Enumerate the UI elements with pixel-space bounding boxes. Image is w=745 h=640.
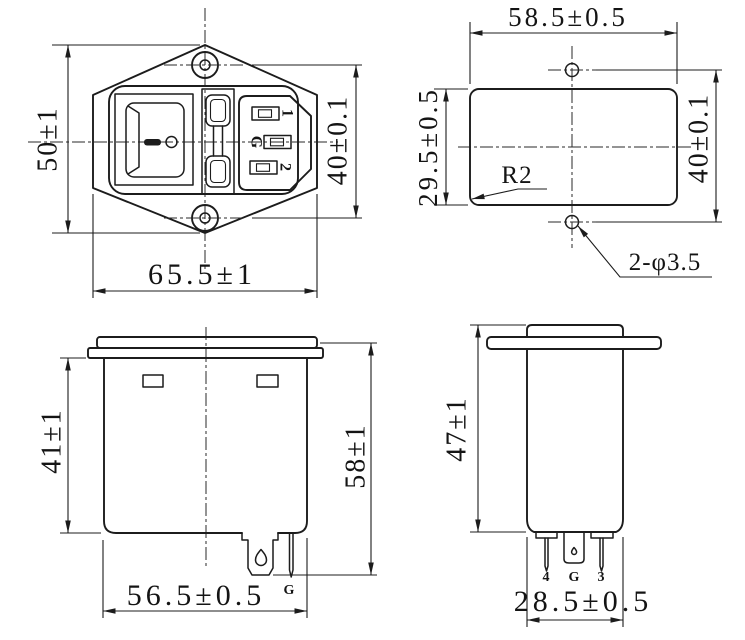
- end-view: 4 G 3 47±1 28.5±0.5: [442, 325, 662, 627]
- end-flange: [487, 337, 661, 349]
- dim-front-height: 50±1: [33, 45, 201, 233]
- pin-bottom-label: 2: [277, 163, 294, 171]
- fuse-drawer-bottom-inner: [211, 161, 226, 183]
- dim-front-hole-spacing-label: 40±0.1: [323, 95, 354, 185]
- rocker-fold-lines: [128, 106, 139, 174]
- latch-window-right: [257, 375, 278, 387]
- dim-cutout-width: 58.5±0.5: [470, 2, 677, 84]
- pin-blade-inner: [259, 110, 272, 118]
- pin-right-label: 3: [598, 570, 605, 585]
- end-top-tab: [527, 325, 623, 337]
- cutout-hole-top: [548, 64, 722, 77]
- corner-radius-callout: R2: [472, 162, 547, 199]
- dim-end-height: 47±1: [442, 325, 527, 532]
- hole-size-callout: 2-φ3.5: [578, 226, 712, 277]
- dim-side-total-height-label: 58±1: [341, 423, 372, 488]
- terminal-tab: [242, 533, 278, 575]
- drawing-canvas: 1 G 2 50±1 40±0.1 65.5±1: [0, 0, 745, 640]
- dim-front-width-label: 65.5±1: [148, 258, 256, 291]
- dim-cutout-hole-spacing-label: 40±0.1: [684, 93, 715, 183]
- face-plate: [109, 86, 298, 194]
- pin-left-label: 4: [543, 570, 550, 585]
- rocker-switch: [115, 94, 193, 185]
- inlet-pin-top: [252, 107, 279, 120]
- pin-blade-inner: [257, 164, 270, 172]
- pin-earth-label: G: [248, 136, 265, 149]
- dim-side-total-height: 58±1: [273, 343, 377, 575]
- dim-front-height-label: 50±1: [33, 106, 64, 171]
- rocker-slot: [144, 139, 161, 146]
- pin-top-label: 1: [279, 109, 296, 117]
- dim-end-width-label: 28.5±0.5: [514, 585, 652, 618]
- dim-side-body-height-label: 41±1: [37, 408, 68, 473]
- flange-top-bar: [97, 337, 317, 348]
- pin-middle-label: G: [569, 570, 580, 585]
- dim-cutout-hole-spacing: 40±0.1: [684, 70, 717, 222]
- dim-end-height-label: 47±1: [442, 396, 473, 461]
- leader-line: [472, 189, 547, 199]
- pin-blade: [252, 107, 279, 120]
- side-view: G 41±1 58±1 56.5±0.5: [37, 327, 378, 618]
- earth-tab-hole: [572, 548, 577, 555]
- end-terminals: 4 G 3: [536, 532, 613, 585]
- end-body-outline: [527, 349, 623, 532]
- dimension-drawing: 1 G 2 50±1 40±0.1 65.5±1: [0, 0, 745, 640]
- cutout-view: 58.5±0.5 29.5±0.5 40±0.1 R2 2-φ3.5: [413, 2, 722, 277]
- dim-side-body-height: 41±1: [37, 358, 102, 533]
- pin-blade: [250, 161, 277, 174]
- corner-radius-label: R2: [501, 162, 532, 189]
- dim-cutout-height-label: 29.5±0.5: [413, 87, 443, 207]
- dim-front-hole-spacing: 40±0.1: [252, 65, 362, 218]
- iec-inlet: 1 G 2: [239, 96, 311, 190]
- front-view: 1 G 2 50±1 40±0.1 65.5±1: [28, 8, 362, 298]
- cutout-hole-bottom: [548, 216, 722, 229]
- pin-left: [545, 538, 548, 571]
- fuse-drawer-bars: [214, 126, 223, 156]
- dim-side-width: 56.5±0.5: [103, 538, 307, 618]
- fuse-drawer-top-inner: [211, 100, 226, 122]
- inlet-pin-bottom: [250, 161, 277, 174]
- terminal-pin: [290, 533, 294, 577]
- terminal-hole: [256, 550, 267, 566]
- hole-size-label: 2-φ3.5: [629, 249, 702, 276]
- pin-right: [600, 538, 603, 571]
- dim-side-width-label: 56.5±0.5: [127, 579, 265, 612]
- dim-end-width: 28.5±0.5: [514, 537, 652, 627]
- earth-terminal-label: G: [284, 583, 295, 598]
- dim-cutout-width-label: 58.5±0.5: [508, 2, 628, 32]
- latch-window-left: [143, 375, 163, 387]
